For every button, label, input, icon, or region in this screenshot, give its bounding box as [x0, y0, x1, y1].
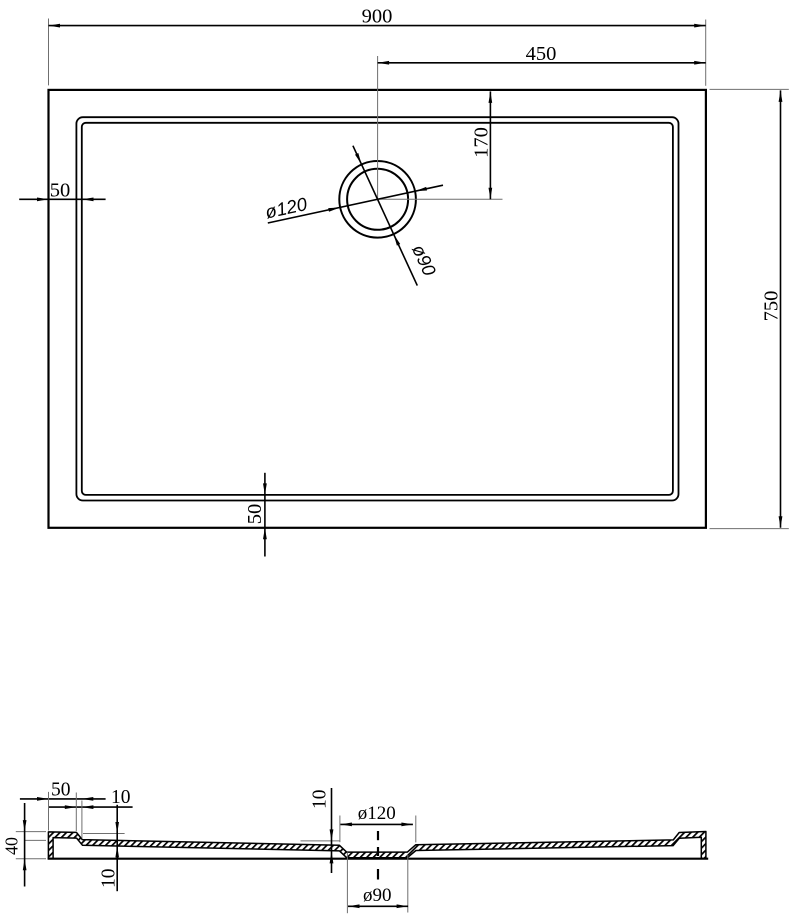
svg-text:50: 50	[51, 779, 71, 800]
svg-text:10: 10	[98, 869, 119, 889]
svg-text:40: 40	[2, 837, 22, 855]
svg-text:450: 450	[526, 43, 557, 65]
svg-text:900: 900	[362, 5, 393, 27]
svg-text:10: 10	[111, 787, 131, 808]
svg-text:50: 50	[50, 179, 71, 201]
svg-text:ø90: ø90	[363, 885, 392, 906]
svg-text:50: 50	[244, 504, 266, 525]
svg-text:170: 170	[470, 127, 492, 158]
svg-text:10: 10	[309, 790, 330, 810]
svg-text:750: 750	[761, 291, 783, 322]
svg-text:ø120: ø120	[358, 803, 396, 824]
